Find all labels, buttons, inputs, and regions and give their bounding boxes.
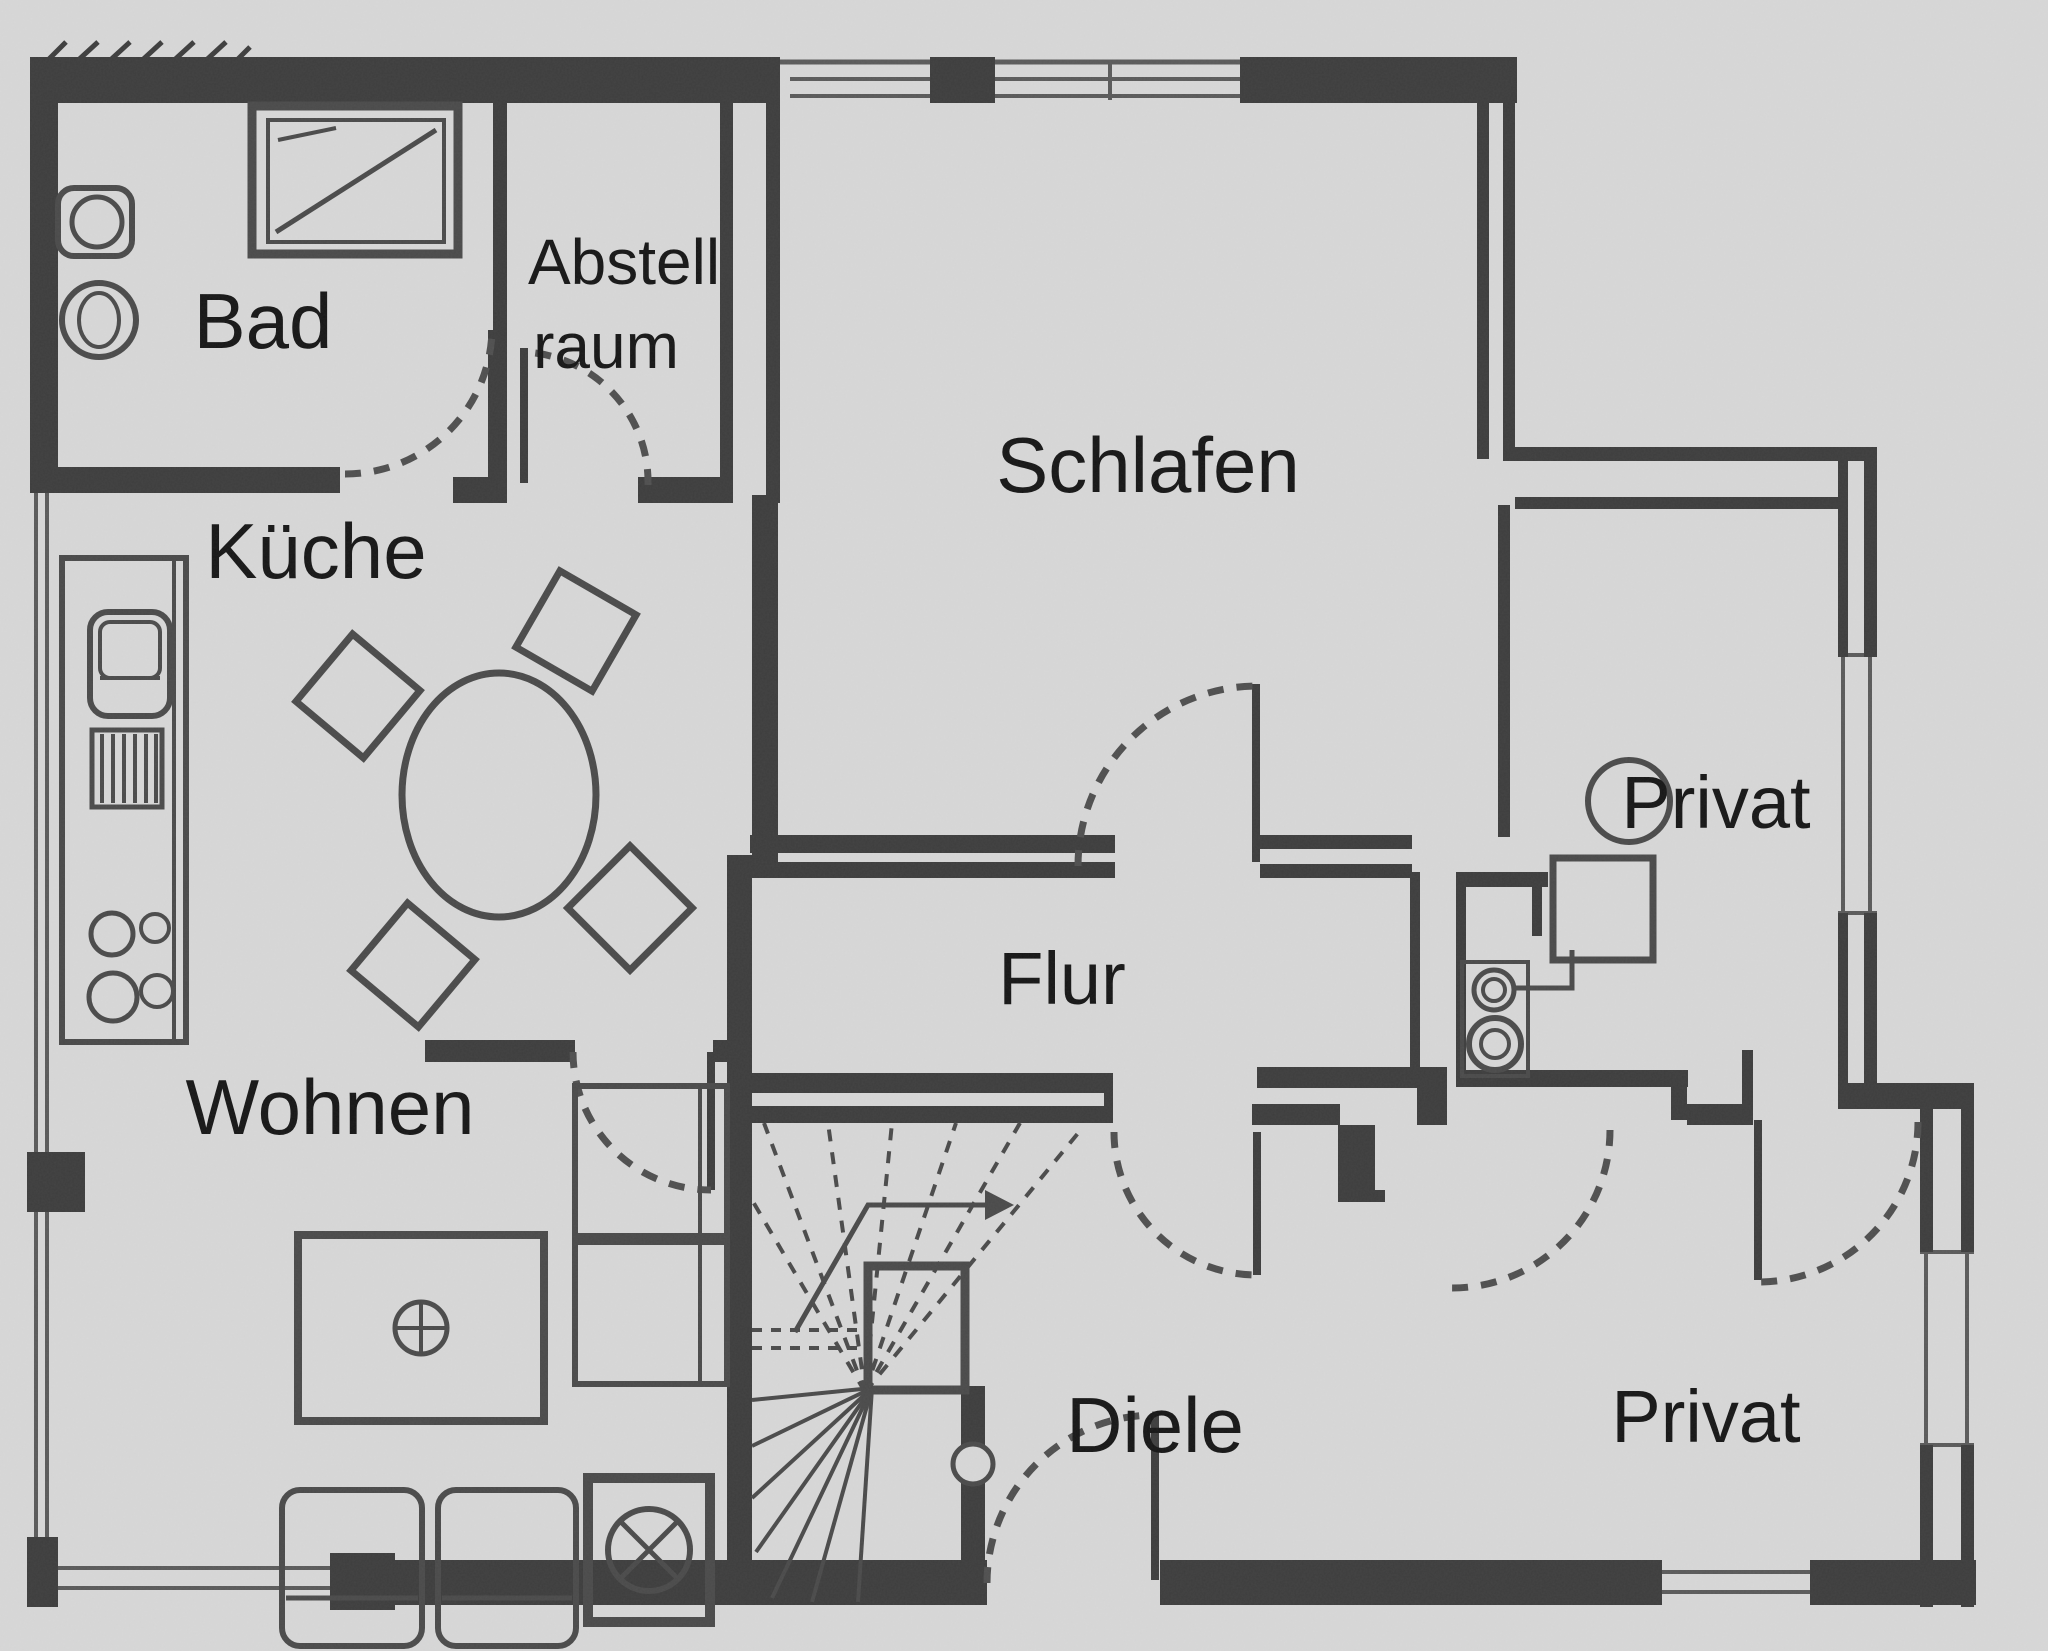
scan-noise-overlay bbox=[0, 0, 2048, 1651]
floor-plan-image: BadKücheAbstellraumSchlafenFlurWohnenDie… bbox=[0, 0, 2048, 1651]
floor-plan-svg: BadKücheAbstellraumSchlafenFlurWohnenDie… bbox=[0, 0, 2048, 1651]
